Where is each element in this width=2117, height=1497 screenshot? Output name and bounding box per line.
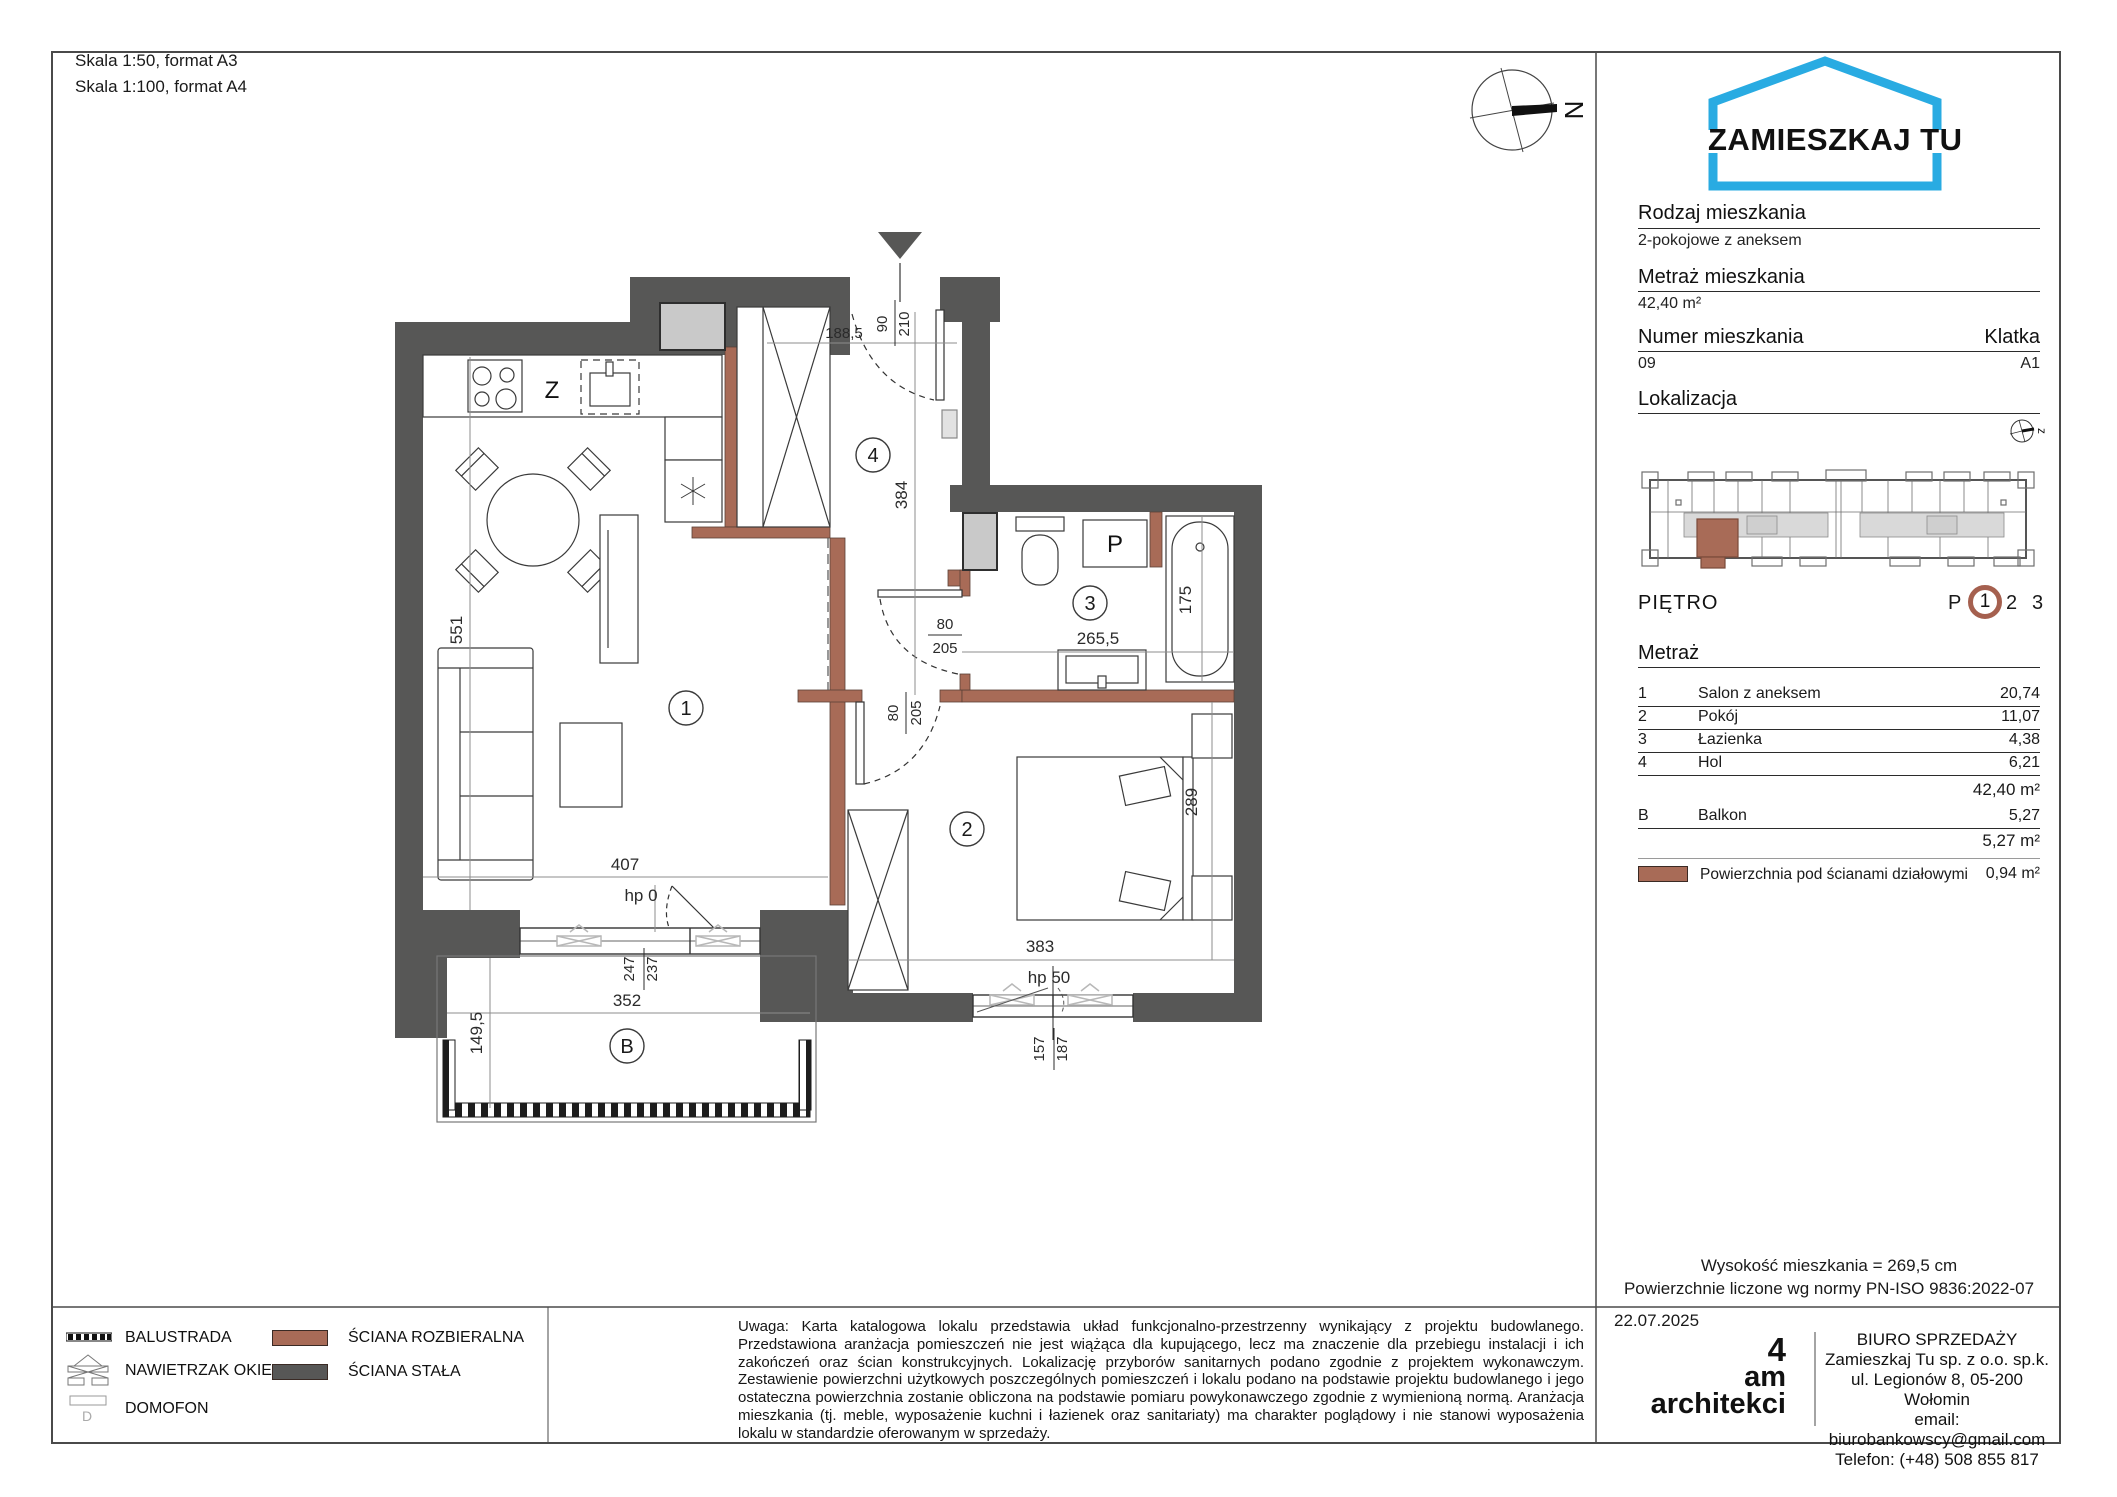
- balustrade-label: BALUSTRADA: [125, 1329, 232, 1347]
- office-email: email: biurobankowscy@gmail.com: [1822, 1410, 2052, 1450]
- locator-highlight-balcony: [1701, 557, 1725, 568]
- furniture-bathroom: P: [1016, 516, 1234, 690]
- dim-bathdoor-h: 205: [932, 640, 957, 657]
- field-rule: [1638, 351, 2040, 352]
- solid-wall-label: ŚCIANA STAŁA: [348, 1363, 461, 1381]
- entrance-arrow-icon: [878, 232, 922, 302]
- svg-text:3: 3: [1084, 593, 1095, 615]
- brand-wordmark: ZAMIESZKAJ TU: [1708, 122, 1942, 158]
- area-row-no: B: [1638, 805, 1698, 828]
- furniture-kitchen: Z: [423, 355, 722, 592]
- dim-balkon-depth: 149,5: [467, 1012, 486, 1055]
- apartment-card-page: N: [0, 0, 2117, 1497]
- partition-value: 0,94 m²: [1970, 865, 2040, 883]
- height-note: Wysokość mieszkania = 269,5 cm: [1604, 1256, 2054, 1276]
- pietro-prefix: P: [1948, 592, 1961, 615]
- washbasin: [1058, 650, 1146, 690]
- compass-north-letter: N: [1559, 101, 1589, 120]
- area-row: 4 Hol 6,21: [1638, 752, 2040, 776]
- room-label-hol: 4: [856, 438, 890, 472]
- area-row-name: Balkon: [1698, 805, 2009, 828]
- numer-klatka-labels: Numer mieszkania Klatka: [1638, 326, 2040, 349]
- balcony-door: [666, 886, 716, 930]
- kitchen-sink: [581, 360, 639, 414]
- area-row-no: 4: [1638, 752, 1698, 775]
- dim-tub: 175: [1176, 586, 1195, 614]
- domofon-icon: [942, 410, 957, 438]
- office-title: BIURO SPRZEDAŻY: [1822, 1330, 2052, 1350]
- office-company: Zamieszkaj Tu sp. z o.o. sp.k.: [1822, 1350, 2052, 1370]
- svg-text:2: 2: [961, 819, 972, 841]
- dim-hol-width: 188,5: [825, 325, 863, 342]
- scale-a4: Skala 1:100, format A4: [75, 74, 247, 100]
- scale-a3: Skala 1:50, format A3: [75, 48, 247, 74]
- domofon-label: DOMOFON: [125, 1400, 209, 1418]
- office-address: ul. Legionów 8, 05-200 Wołomin: [1822, 1370, 2052, 1410]
- area-row: 2 Pokój 11,07: [1638, 706, 2040, 730]
- pietro-selected-value: 1: [1980, 591, 1991, 613]
- studio-logo-am: am: [1596, 1364, 1786, 1390]
- hall-wardrobe: [737, 307, 830, 527]
- dim-beddoor-h: 205: [908, 700, 925, 725]
- coffee-table: [560, 723, 622, 807]
- studio-logo-4: 4: [1596, 1336, 1786, 1364]
- numer-klatka-values: 09 A1: [1638, 355, 2040, 373]
- mini-compass-letter: z: [2035, 428, 2049, 434]
- area-row-value: 5,27: [2009, 805, 2040, 828]
- dim-balcony-door-b: 237: [644, 956, 661, 981]
- pietro-option-3: 3: [2032, 592, 2043, 615]
- svg-text:1: 1: [680, 698, 691, 720]
- svg-text:D: D: [82, 1408, 92, 1424]
- areas-total: 42,40 m²: [1638, 780, 2040, 800]
- bedroom-wardrobe: [848, 810, 908, 990]
- area-row-name: Łazienka: [1698, 729, 2009, 752]
- dim-salon-width: 407: [611, 855, 639, 874]
- rodzaj-label: Rodzaj mieszkania: [1638, 202, 1806, 225]
- balkon-row: B Balkon 5,27: [1638, 805, 2040, 829]
- disclaimer-text: Uwaga: Karta katalogowa lokalu przedstaw…: [738, 1318, 1584, 1443]
- dim-pokoj-width: 383: [1026, 937, 1054, 956]
- dim-hol-height: 384: [892, 481, 911, 509]
- area-row-name: Pokój: [1698, 706, 2001, 729]
- room-label-pokoj: 2: [950, 812, 984, 846]
- numer-value: 09: [1638, 355, 1656, 373]
- field-rule: [1638, 667, 2040, 668]
- area-row-no: 3: [1638, 729, 1698, 752]
- klatka-value: A1: [2020, 355, 2040, 373]
- partition-label: Powierzchnia pod ścianami działowymi: [1700, 866, 1968, 884]
- scale-note: Skala 1:50, format A3 Skala 1:100, forma…: [75, 48, 247, 100]
- window-vent-icon: [1068, 984, 1112, 1005]
- dining-table: [456, 448, 610, 592]
- dim-salon-hp: hp 0: [624, 886, 657, 905]
- dim-entry-h: 210: [896, 311, 913, 336]
- floor-plan: Z: [395, 232, 1262, 1122]
- partition-swatch: [1638, 866, 1688, 882]
- area-row-no: 2: [1638, 706, 1698, 729]
- field-rule: [1638, 413, 2040, 414]
- dim-salon-height: 551: [447, 616, 466, 644]
- sideboard: [600, 515, 638, 663]
- area-row-value: 4,38: [2009, 729, 2040, 752]
- pietro-selected: 1: [1968, 585, 2002, 619]
- dim-balcony-door-a: 247: [621, 956, 638, 981]
- area-row: 1 Salon z aneksem 20,74: [1638, 683, 2040, 707]
- room-label-salon: 1: [669, 691, 703, 725]
- area-row-value: 20,74: [2000, 683, 2040, 706]
- metraz-value: 42,40 m²: [1638, 295, 1701, 313]
- bed: [1017, 757, 1193, 920]
- pietro-label: PIĘTRO: [1638, 592, 1718, 615]
- studio-logo-name: architekci: [1596, 1390, 1786, 1418]
- sofa: [438, 648, 533, 880]
- partition-wall-swatch: [272, 1330, 328, 1346]
- svg-text:4: 4: [867, 445, 878, 467]
- partition-wall-label: ŚCIANA ROZBIERALNA: [348, 1329, 524, 1347]
- area-row-name: Hol: [1698, 752, 2009, 775]
- dim-pokoj-hp: hp 50: [1028, 968, 1071, 987]
- room-label-lazienka: 3: [1073, 586, 1107, 620]
- mini-compass-icon: z: [2010, 420, 2049, 442]
- footer-date: 22.07.2025: [1614, 1311, 1699, 1331]
- dim-window-b: 187: [1054, 1036, 1071, 1061]
- areas-label: Metraż: [1638, 642, 1699, 665]
- dim-lazienka-width: 265,5: [1077, 629, 1120, 648]
- area-row-value: 6,21: [2009, 752, 2040, 775]
- solid-wall-swatch: [272, 1364, 328, 1380]
- dim-balkon-width: 352: [613, 991, 641, 1010]
- room-label-balkon: B: [610, 1029, 644, 1063]
- domofon-legend-icon: D: [68, 1394, 108, 1424]
- metraz-label: Metraż mieszkania: [1638, 266, 1805, 289]
- dim-beddoor-w: 80: [885, 705, 902, 722]
- lokalizacja-label: Lokalizacja: [1638, 388, 1737, 411]
- north-compass-icon: N: [1470, 68, 1589, 152]
- svg-text:B: B: [620, 1036, 633, 1058]
- thin-rule: [1638, 858, 2040, 859]
- dim-bathdoor-w: 80: [937, 616, 954, 633]
- window-vent-legend-icon: [66, 1352, 110, 1388]
- numer-label: Numer mieszkania: [1638, 326, 1804, 349]
- pietro-option-2: 2: [2006, 592, 2017, 615]
- toilet: [1016, 517, 1064, 585]
- klatka-label: Klatka: [1984, 326, 2040, 349]
- area-row-no: 1: [1638, 683, 1698, 706]
- balustrade-icon: [66, 1330, 112, 1344]
- locator-map: [1642, 470, 2034, 568]
- studio-logo: 4 am architekci: [1596, 1336, 1786, 1418]
- area-row: 3 Łazienka 4,38: [1638, 729, 2040, 753]
- balkon-total: 5,27 m²: [1638, 831, 2040, 851]
- dim-window-a: 157: [1031, 1036, 1048, 1061]
- area-row-value: 11,07: [2001, 706, 2040, 729]
- rodzaj-value: 2-pokojowe z aneksem: [1638, 232, 1802, 250]
- locator-highlight-unit: [1697, 519, 1738, 557]
- sales-office-block: BIURO SPRZEDAŻY Zamieszkaj Tu sp. z o.o.…: [1822, 1330, 2052, 1470]
- dishwasher-label: Z: [545, 377, 560, 404]
- washer-label: P: [1107, 531, 1123, 558]
- field-rule: [1638, 228, 2040, 229]
- hob: [468, 360, 522, 412]
- dim-entry-w: 90: [874, 316, 891, 333]
- washing-machine: P: [1083, 520, 1147, 567]
- norm-note: Powierzchnie liczone wg normy PN-ISO 983…: [1604, 1279, 2054, 1299]
- dim-pokoj-height: 289: [1182, 788, 1201, 816]
- area-row-name: Salon z aneksem: [1698, 683, 2000, 706]
- office-phone: Telefon: (+48) 508 855 817: [1822, 1450, 2052, 1470]
- field-rule: [1638, 291, 2040, 292]
